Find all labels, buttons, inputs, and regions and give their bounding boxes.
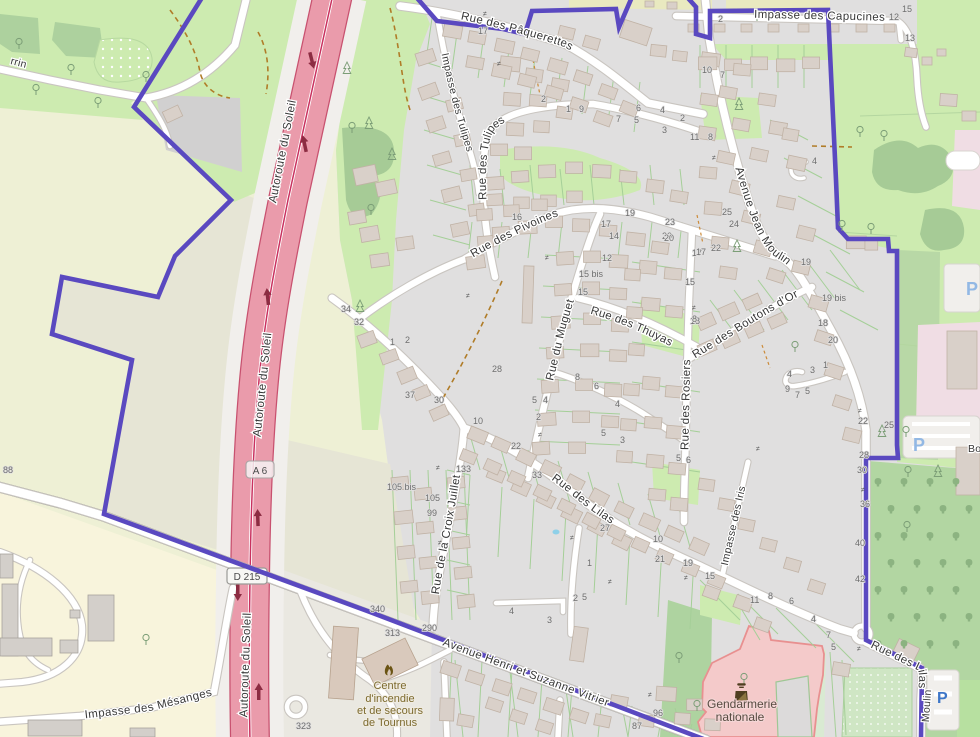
svg-text:15 bis: 15 bis [579,269,604,279]
svg-text:17: 17 [696,247,706,257]
svg-text:40: 40 [855,538,865,548]
svg-text:2: 2 [718,14,723,24]
svg-text:8: 8 [692,314,697,324]
svg-text:25: 25 [884,420,894,430]
svg-text:7: 7 [720,70,725,80]
svg-text:15: 15 [705,571,715,581]
svg-text:A 6: A 6 [253,466,268,477]
svg-text:37: 37 [405,390,415,400]
svg-text:22: 22 [711,243,721,253]
svg-text:Centre: Centre [373,680,406,692]
svg-text:15: 15 [578,287,588,297]
svg-text:87: 87 [632,721,642,731]
svg-text:Rue des Rosiers: Rue des Rosiers [679,359,693,450]
svg-text:19: 19 [625,208,635,218]
svg-text:6: 6 [789,596,794,606]
svg-text:≠: ≠ [570,535,574,542]
svg-text:Gendarmerie: Gendarmerie [707,697,777,711]
svg-text:≠: ≠ [692,305,696,312]
svg-text:≠: ≠ [858,408,862,415]
svg-text:9: 9 [785,384,790,394]
svg-text:≠: ≠ [756,446,760,453]
svg-text:16: 16 [512,212,522,222]
svg-text:8: 8 [708,132,713,142]
svg-text:5: 5 [532,395,537,405]
svg-text:33: 33 [532,470,542,480]
svg-text:1: 1 [566,104,571,114]
svg-text:4: 4 [615,399,620,409]
svg-text:nationale: nationale [716,710,765,724]
svg-text:15: 15 [902,4,912,14]
svg-text:88: 88 [3,465,13,475]
svg-text:9: 9 [579,104,584,114]
svg-text:34: 34 [341,304,351,314]
svg-text:≠: ≠ [648,692,652,699]
svg-text:19: 19 [801,257,811,267]
svg-text:7: 7 [616,114,621,124]
svg-text:5: 5 [805,386,810,396]
svg-text:3: 3 [810,365,815,375]
svg-text:11: 11 [690,132,699,142]
svg-text:2: 2 [536,412,541,422]
svg-text:20: 20 [828,335,838,345]
svg-text:12: 12 [889,12,899,22]
svg-text:4: 4 [509,606,514,616]
svg-text:17: 17 [601,219,611,229]
svg-text:≠: ≠ [712,155,716,162]
svg-text:12: 12 [602,253,612,263]
svg-text:22: 22 [858,416,868,426]
svg-text:d'incendie: d'incendie [365,693,414,705]
svg-text:10: 10 [473,416,483,426]
svg-text:≠: ≠ [545,255,549,262]
svg-text:340: 340 [370,604,385,614]
svg-text:D 215: D 215 [234,572,261,583]
svg-text:30: 30 [857,465,867,475]
svg-text:313: 313 [385,628,400,638]
svg-text:8: 8 [575,372,580,382]
svg-text:2: 2 [680,113,685,123]
svg-text:≠: ≠ [466,293,470,300]
svg-text:4: 4 [660,105,665,115]
svg-text:4: 4 [787,369,792,379]
svg-text:6: 6 [636,103,641,113]
svg-text:5: 5 [601,428,606,438]
svg-text:30: 30 [434,395,444,405]
svg-text:14: 14 [609,231,619,241]
svg-text:2: 2 [405,335,410,345]
svg-text:18: 18 [818,318,828,328]
svg-text:≠: ≠ [538,432,542,439]
svg-text:4: 4 [811,614,816,624]
svg-text:32: 32 [354,317,364,327]
svg-text:25: 25 [722,207,732,217]
svg-text:19: 19 [683,558,693,568]
svg-text:et de secours: et de secours [357,705,424,717]
svg-text:28: 28 [492,364,502,374]
svg-text:Moulin: Moulin [920,689,934,722]
svg-text:36: 36 [860,499,870,509]
svg-text:24: 24 [729,219,739,229]
svg-text:105: 105 [425,493,440,503]
svg-text:133: 133 [456,464,471,474]
svg-text:5: 5 [582,592,587,602]
svg-text:P: P [966,279,978,299]
svg-text:10: 10 [653,534,663,544]
svg-text:23: 23 [665,217,675,227]
svg-text:P: P [937,690,948,707]
svg-text:10: 10 [702,65,712,75]
svg-text:290: 290 [422,623,437,633]
svg-text:de Tournus: de Tournus [363,717,418,729]
svg-text:4: 4 [543,395,548,405]
svg-text:6: 6 [594,381,599,391]
svg-text:5: 5 [831,642,836,652]
svg-text:13: 13 [905,33,915,43]
svg-text:28: 28 [859,450,869,460]
svg-text:5: 5 [634,115,639,125]
svg-text:Bo: Bo [968,443,980,455]
svg-text:3: 3 [547,615,552,625]
svg-text:42: 42 [855,574,865,584]
svg-text:11: 11 [750,595,759,605]
svg-text:3: 3 [620,435,625,445]
svg-text:5: 5 [676,453,681,463]
svg-text:8: 8 [768,591,773,601]
svg-text:≠: ≠ [684,575,688,582]
svg-text:20: 20 [664,233,674,243]
svg-text:6: 6 [686,455,691,465]
svg-text:96: 96 [653,708,663,718]
svg-text:22: 22 [511,441,521,451]
svg-text:P: P [913,435,925,455]
svg-text:99: 99 [427,508,437,518]
svg-text:4: 4 [812,156,817,166]
svg-text:≠: ≠ [861,487,865,494]
svg-text:1: 1 [823,360,828,370]
svg-text:105 bis: 105 bis [387,482,417,492]
svg-text:3: 3 [662,125,667,135]
svg-text:7: 7 [826,630,831,640]
svg-text:323: 323 [296,721,311,731]
svg-text:≠: ≠ [497,61,501,68]
svg-text:2: 2 [541,94,546,104]
svg-text:1: 1 [587,558,592,568]
svg-text:19 bis: 19 bis [822,293,847,303]
svg-text:≠: ≠ [857,646,861,653]
svg-text:≠: ≠ [436,465,440,472]
svg-text:7: 7 [795,390,800,400]
svg-text:15: 15 [685,277,695,287]
svg-text:1: 1 [390,337,395,347]
svg-text:≠: ≠ [608,579,612,586]
svg-text:2: 2 [573,593,578,603]
svg-text:21: 21 [655,554,665,564]
